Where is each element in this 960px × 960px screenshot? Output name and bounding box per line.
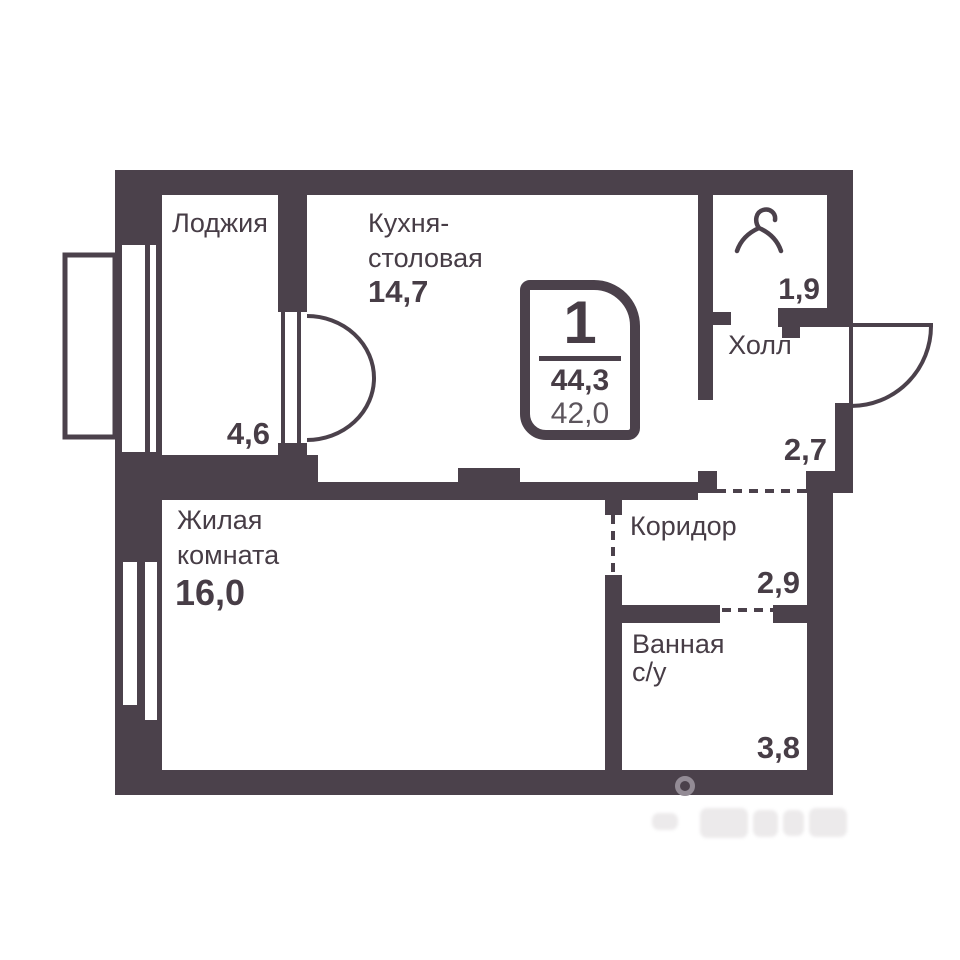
wall-loggia-kitchen-upper xyxy=(278,195,307,312)
rooms-count: 1 xyxy=(563,292,596,354)
room-area-wardrobe: 1,9 xyxy=(750,273,820,307)
hanger-icon xyxy=(737,210,781,251)
wall-bathroom-top-left xyxy=(605,605,720,623)
living-area: 42,0 xyxy=(551,397,609,430)
wall-living-corridor-stub xyxy=(605,495,622,515)
room-label-living-line2: комната xyxy=(177,540,279,570)
wall-kitchen-bottom xyxy=(313,482,698,500)
watermark-blob xyxy=(809,808,847,837)
room-area-hall: 2,7 xyxy=(750,432,827,468)
balcony-outline xyxy=(65,255,115,437)
badge-divider xyxy=(539,356,621,361)
room-label-kitchen-line1: Кухня- xyxy=(368,208,449,238)
total-area: 44,3 xyxy=(551,364,609,397)
wall-hall-band-left xyxy=(698,471,717,493)
unit-info-badge: 1 44,3 42,0 xyxy=(520,280,640,440)
room-area-corridor: 2,9 xyxy=(730,565,800,601)
double-door-swing-icon xyxy=(307,378,374,440)
watermark-blob xyxy=(700,808,748,838)
wall-top xyxy=(115,170,853,195)
floor-plan: Лоджия 4,6 Кухня-столовая 14,7 1,9 Холл … xyxy=(0,0,960,960)
room-label-kitchen: Кухня-столовая xyxy=(368,206,483,276)
room-label-living: Жилаякомната xyxy=(177,503,279,573)
watermark-blob xyxy=(783,810,804,836)
entrance-door-frame-line xyxy=(849,327,853,403)
room-area-kitchen: 14,7 xyxy=(368,274,428,310)
wall-bottom xyxy=(115,770,833,795)
room-label-loggia: Лоджия xyxy=(162,206,278,241)
loggia-window-pane xyxy=(122,245,145,452)
wall-bathroom-top-right xyxy=(773,605,807,623)
watermark-blob xyxy=(753,810,778,837)
wall-wardrobe-stub xyxy=(698,312,731,325)
double-door-swing-icon xyxy=(307,316,374,378)
door-swing-icon xyxy=(851,326,931,406)
room-label-bathroom-line1: Ванная xyxy=(632,629,724,659)
room-area-living: 16,0 xyxy=(175,572,245,614)
room-area-bathroom: 3,8 xyxy=(730,730,800,766)
wall-right-middle xyxy=(835,403,853,472)
room-label-bathroom: Ваннаяс/у xyxy=(632,630,724,686)
room-area-loggia: 4,6 xyxy=(200,416,270,452)
room-label-living-line1: Жилая xyxy=(177,505,262,535)
room-label-corridor: Коридор xyxy=(630,509,737,544)
room-label-kitchen-line2: столовая xyxy=(368,243,483,273)
wall-kitchen-hall xyxy=(698,195,713,400)
wall-hall-band-right xyxy=(806,471,853,493)
wall-right-lower xyxy=(807,493,833,795)
living-window-pane xyxy=(123,562,137,705)
wall-loggia-kitchen-lower xyxy=(278,443,307,500)
wall-right-upper xyxy=(827,170,853,327)
room-label-bathroom-line2: с/у xyxy=(632,657,667,687)
room-label-hall: Холл xyxy=(710,328,810,363)
wall-duct-pier xyxy=(458,468,520,482)
watermark-blob xyxy=(652,813,678,830)
living-window-pane-thin xyxy=(145,562,157,720)
loggia-window-pane-thin xyxy=(150,245,156,452)
